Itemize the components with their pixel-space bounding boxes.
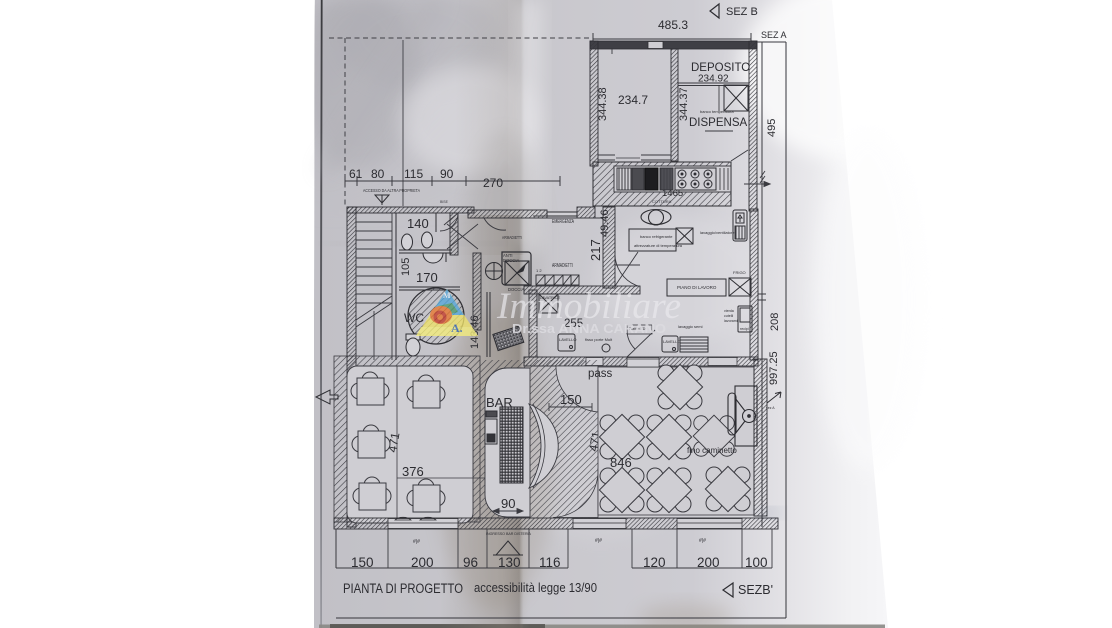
svg-text:SEZ A: SEZ A: [761, 30, 787, 40]
svg-text:DEPOSITO: DEPOSITO: [691, 62, 750, 74]
svg-text:ACCESSO DA ALTRA PROPRIETA: ACCESSO DA ALTRA PROPRIETA: [363, 188, 420, 193]
svg-text:M: M: [443, 291, 451, 300]
svg-text:120: 120: [643, 555, 666, 570]
svg-text:LAVELLO: LAVELLO: [663, 339, 681, 344]
svg-text:90: 90: [501, 496, 515, 511]
svg-text:96: 96: [463, 555, 478, 570]
svg-text:115: 115: [404, 167, 423, 181]
svg-text:130: 130: [498, 555, 521, 570]
svg-text:270: 270: [483, 176, 503, 190]
svg-text:376: 376: [402, 464, 424, 479]
svg-text:80: 80: [371, 167, 385, 181]
svg-text:lavaggio semi: lavaggio semi: [678, 324, 703, 329]
svg-text:accessibilità legge 13/90: accessibilità legge 13/90: [474, 580, 597, 595]
svg-text:cutelli: cutelli: [724, 314, 733, 318]
svg-text:A.: A.: [451, 321, 463, 335]
svg-text:170: 170: [416, 270, 438, 285]
svg-text:150: 150: [560, 392, 582, 407]
svg-text:fisso porte Mult: fisso porte Mult: [585, 337, 613, 342]
svg-text:DISPENSA: DISPENSA: [689, 117, 747, 129]
svg-text:ARMADIETTI: ARMADIETTI: [502, 235, 522, 240]
svg-text:105: 105: [400, 258, 412, 276]
svg-text:846: 846: [610, 455, 632, 470]
svg-text:217: 217: [588, 239, 603, 261]
svg-text:INGRESSO BAR DISTERIA: INGRESSO BAR DISTERIA: [486, 532, 532, 536]
svg-text:PIANTA DI PROGETTO: PIANTA DI PROGETTO: [343, 581, 463, 596]
svg-text:100: 100: [745, 555, 768, 570]
svg-text:Dr.ssa ANNA CARANO: Dr.ssa ANNA CARANO: [512, 321, 666, 336]
svg-text:sez A: sez A: [766, 406, 775, 410]
svg-text:1465: 1465: [662, 188, 683, 199]
svg-text:SEZB': SEZB': [738, 583, 773, 597]
svg-text:LAVELLO: LAVELLO: [559, 337, 577, 342]
svg-text:vierda: vierda: [724, 309, 734, 313]
svg-text:90: 90: [440, 167, 454, 181]
svg-text:344.37: 344.37: [678, 87, 690, 121]
svg-text:BISE: BISE: [440, 200, 449, 204]
svg-text:PIANO DI LAVORO: PIANO DI LAVORO: [677, 285, 717, 290]
svg-text:140: 140: [407, 216, 429, 231]
svg-text:FRIGO: FRIGO: [733, 270, 746, 275]
svg-text:485.3: 485.3: [658, 18, 688, 32]
svg-text:344.38: 344.38: [597, 87, 609, 121]
svg-text:61: 61: [349, 167, 363, 181]
svg-text:1 2: 1 2: [536, 268, 542, 273]
svg-text:208: 208: [769, 313, 781, 331]
svg-text:#|#: #|#: [699, 538, 706, 544]
svg-text:150: 150: [351, 555, 374, 570]
svg-text:SEZ B: SEZ B: [726, 6, 758, 18]
svg-text:lavorami: lavorami: [724, 319, 738, 323]
svg-text:pass: pass: [588, 368, 613, 380]
svg-text:200: 200: [411, 555, 434, 570]
svg-text:banco refrigerante: banco refrigerante: [640, 234, 673, 239]
svg-text:recipi: recipi: [740, 327, 749, 331]
svg-text:DOCCIA: DOCCIA: [503, 258, 519, 263]
svg-text:997.25: 997.25: [768, 351, 780, 385]
svg-text:ARMADIETTI: ARMADIETTI: [552, 263, 573, 269]
svg-text:lavaggio/ventilatore: lavaggio/ventilatore: [700, 230, 735, 235]
svg-text:234.7: 234.7: [618, 93, 648, 107]
svg-text:#|#: #|#: [413, 539, 420, 545]
svg-text:attrezzature di temperatura: attrezzature di temperatura: [634, 243, 683, 248]
svg-text:WC: WC: [404, 311, 424, 325]
svg-text:fino caminetto: fino caminetto: [687, 446, 737, 455]
svg-text:EMERGENZA: EMERGENZA: [552, 219, 574, 225]
svg-text:#|#: #|#: [595, 538, 602, 544]
svg-text:116: 116: [539, 555, 561, 570]
svg-text:COTTURA: COTTURA: [652, 199, 672, 204]
svg-text:banco temperatura: banco temperatura: [700, 109, 734, 114]
svg-text:495: 495: [766, 119, 778, 137]
svg-text:200: 200: [697, 555, 720, 570]
